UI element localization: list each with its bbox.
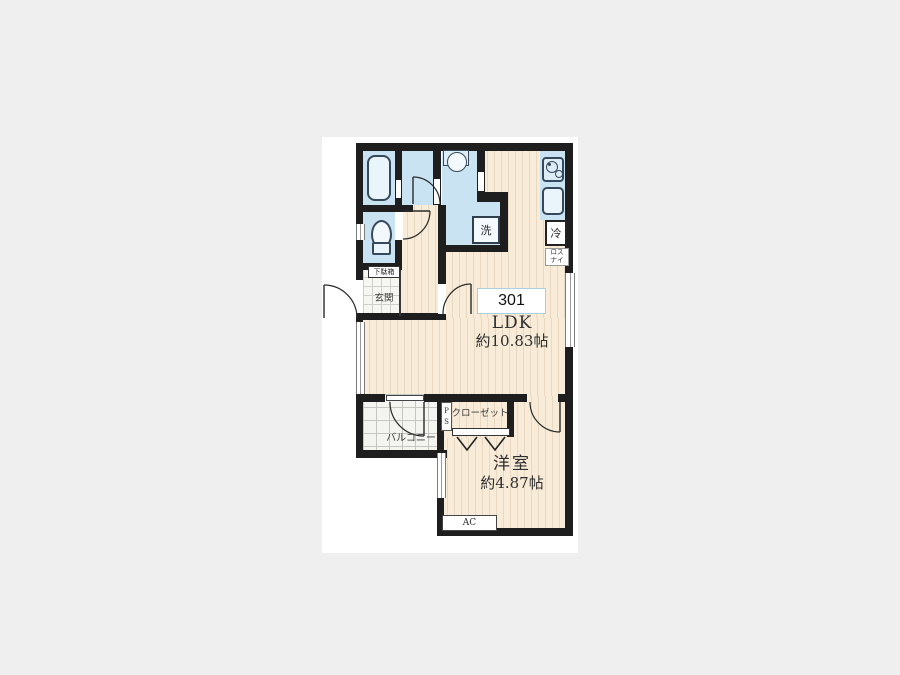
fridge-label: 冷 (551, 225, 562, 241)
ac-label: AC (463, 518, 476, 528)
unit-number: 301 (498, 292, 525, 310)
unit-number-badge: 301 (477, 288, 546, 314)
ldk-area-label: 約10.83帖 (467, 333, 557, 350)
washer-box: 洗 (472, 216, 500, 244)
shoe-cabinet-label: 下駄箱 (374, 267, 395, 277)
lossnay-box: ロス ナイ (545, 248, 569, 266)
floorplan-page: { "unit": { "number": "301" }, "rooms": … (0, 0, 900, 675)
closet-label: クローゼット (451, 409, 509, 420)
lossnay-label-line2: ナイ (551, 257, 564, 265)
western-room-area-label: 約4.87帖 (467, 475, 557, 492)
pipe-space-label-s: S (444, 417, 449, 428)
shoe-cabinet-box: 下駄箱 (368, 266, 400, 278)
ac-box: AC (442, 515, 497, 531)
balcony-label: バルコニー (382, 433, 440, 445)
pipe-space-label-p: P (444, 406, 449, 417)
fridge-box: 冷 (545, 220, 567, 246)
entrance-label: 玄関 (369, 294, 399, 305)
floorplan-canvas: 下駄箱 洗 冷 ロス ナイ P S AC 301 LDK 約10.83帖 洋室 … (322, 137, 578, 553)
western-room-name-label: 洋室 (467, 455, 557, 475)
ldk-name-label: LDK (472, 314, 552, 334)
washer-label: 洗 (481, 222, 492, 238)
